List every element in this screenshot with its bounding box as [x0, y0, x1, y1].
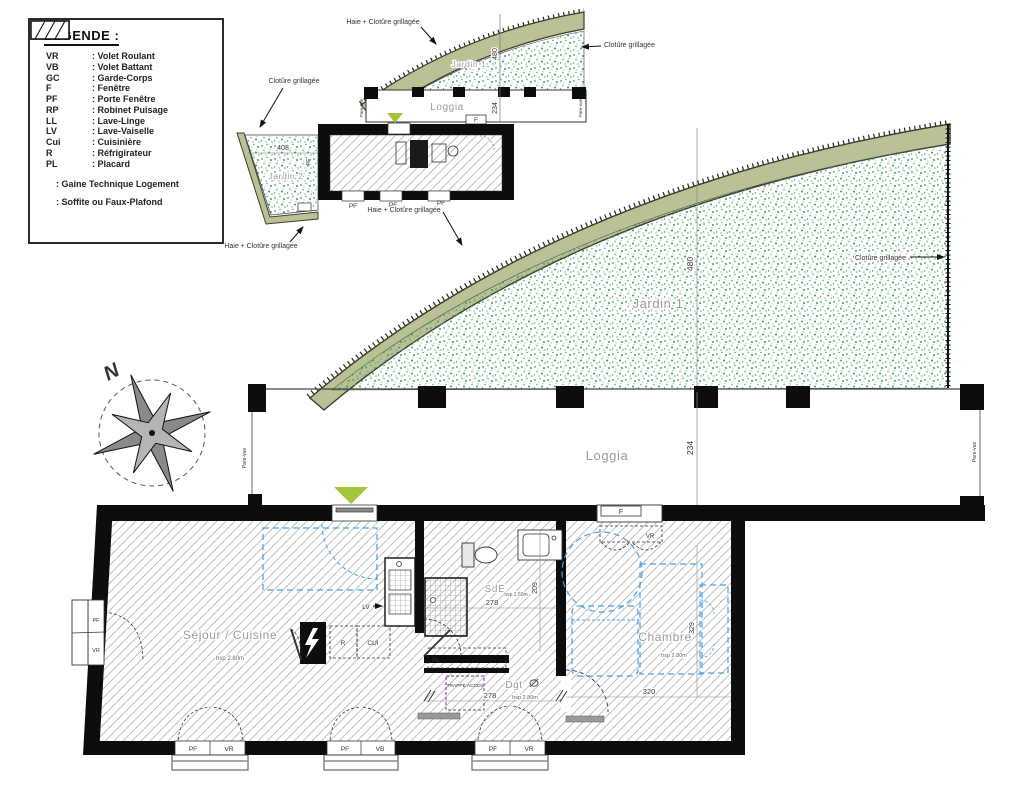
mini-pare-vue-right: Pare-vue	[578, 98, 583, 117]
pare-vue-right: Pare-vue	[972, 442, 978, 463]
chambre-hsp: hsp 2.80m	[661, 653, 687, 659]
loggia-dim-234: 234	[685, 441, 695, 455]
mini-cloture-left-label: Clotûre grillagée	[269, 78, 320, 85]
sde-dim-209: 209	[532, 582, 539, 594]
loggia-label: Loggia	[586, 448, 629, 463]
mini-cloture-left-arrow	[260, 88, 283, 127]
sejour-label: Séjour / Cuisine	[183, 628, 277, 642]
legend-row: VB: Volet Battant	[46, 63, 168, 74]
sde-hsp: hsp 2.50m	[504, 592, 527, 598]
mini-cloture-right-label: Clotûre grillagée	[604, 42, 655, 49]
legend-symbol-gaine: : Gaine Technique Logement	[46, 179, 222, 189]
legend-label: : Placard	[92, 160, 168, 171]
compass-north-label: N	[100, 359, 124, 385]
sde-dim-278: 278	[486, 598, 499, 607]
legend-table: VR: Volet Roulant VB: Volet Battant GC: …	[46, 52, 168, 171]
cui-label: CUI	[367, 640, 378, 647]
wall-right	[731, 505, 745, 755]
lv-label: LV	[362, 604, 370, 611]
w3-vr: VR	[524, 746, 533, 753]
chambre-window-vr-label: VR	[646, 534, 655, 540]
loggia-parapet	[745, 505, 985, 521]
mini-jardin1-label: Jardin 1	[451, 59, 486, 69]
soffite-icon	[30, 20, 70, 40]
mini-entrance-gap	[388, 123, 410, 134]
pl-label: PL	[432, 658, 440, 664]
mini-dim-234: 234	[492, 102, 499, 114]
mini-haie-bottom-left-label: Haie + Clotûre grillagée	[224, 243, 297, 250]
floor-plan-page: { "legend": { "title": "LEGENDE :", "ite…	[0, 0, 1031, 800]
legend-symbol-soffite: : Soffite ou Faux-Plafond	[46, 197, 222, 207]
r-label: R	[341, 640, 346, 647]
cloture-right-label: Clotûre grillagée	[855, 255, 906, 262]
legend-row: PL: Placard	[46, 160, 168, 171]
legend-box: LEGENDE : VR: Volet Roulant VB: Volet Ba…	[28, 18, 224, 244]
mini-dim-480: 480	[492, 48, 499, 60]
w3-pf: PF	[489, 746, 497, 753]
mini-haie-top-label: Haie + Clotûre grillagée	[346, 19, 419, 26]
dgt-dim-278: 278	[484, 691, 497, 700]
mini-f-label: F	[474, 117, 478, 124]
chambre-label: Chambre	[638, 630, 692, 644]
mini-dim-408: 408	[277, 145, 289, 152]
compass-center	[149, 430, 155, 436]
w2-pf: PF	[341, 746, 349, 753]
mini-pf-3: PF	[437, 200, 445, 207]
left-window-vr: VR	[92, 648, 100, 654]
legend-abbr: GC	[46, 74, 92, 85]
chambre-window-f-label: F	[619, 509, 623, 516]
mini-pf-1: PF	[349, 203, 357, 210]
legend-symbol-label: : Soffite ou Faux-Plafond	[56, 197, 163, 207]
pare-vue-left: Pare-vue	[242, 448, 248, 469]
entrance-gap	[332, 505, 377, 521]
sejour-hsp: hsp 2.80m	[216, 656, 244, 662]
jardin1-label: Jardin 1	[632, 296, 683, 311]
mini-haie-bottom-label: Haie + Clotûre grillagée	[367, 207, 440, 214]
mini-site-plan: Loggia 480 234 Jardin 1 F Pare-vue Pare-…	[224, 10, 655, 250]
dgt-hsp: hsp 2.80m	[512, 695, 538, 701]
legend-abbr: PL	[46, 160, 92, 171]
w2-vb: VB	[376, 746, 385, 753]
apartment: F VR PF VR PF VR PF VB	[72, 487, 985, 770]
trappe-label: TRAPPE ACCES	[447, 683, 484, 689]
chambre-dim-320: 320	[643, 687, 656, 696]
entrance-triangle	[334, 487, 368, 504]
w1-pf: PF	[189, 746, 197, 753]
w1-vr: VR	[224, 746, 233, 753]
chambre-dim-329: 329	[689, 622, 696, 634]
mini-pare-vue-left: Pare-vue	[359, 98, 364, 117]
mini-jardin2-label: Jardin 2	[268, 171, 303, 181]
entrance-door-leaf	[336, 508, 373, 512]
mini-haie-top-arrow	[421, 27, 436, 44]
mini-jardin2-step	[298, 203, 311, 211]
legend-symbol-label: : Gaine Technique Logement	[56, 179, 179, 189]
mini-haie-bottom-left-arrow	[290, 227, 303, 242]
sde-label: SdE	[485, 584, 506, 595]
kitchen-sink-unit	[385, 558, 415, 626]
mini-haie-bottom-arrow	[443, 212, 462, 245]
legend-abbr: VB	[46, 63, 92, 74]
left-window-pf: PF	[92, 618, 100, 624]
mini-cloture-right-arrow	[582, 46, 601, 47]
mini-window-gaps	[342, 191, 450, 201]
shower	[425, 578, 467, 636]
jardin-dim-480: 480	[685, 257, 695, 271]
dgt-label: Dgt	[505, 680, 522, 691]
mini-loggia-label: Loggia	[430, 102, 464, 113]
compass-rose: N	[94, 359, 211, 491]
legend-label: : Volet Battant	[92, 63, 168, 74]
